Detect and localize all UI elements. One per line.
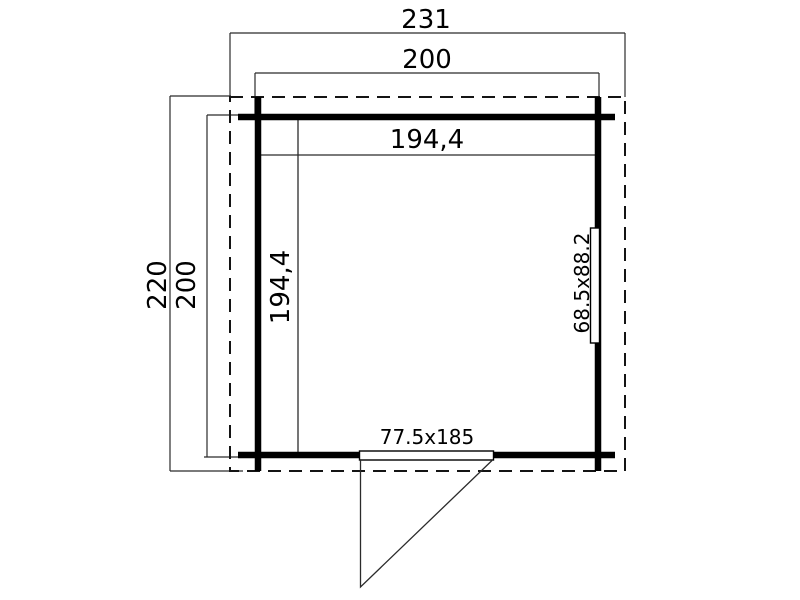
label-window-size: 68.5x88.2	[570, 233, 594, 334]
dimension-lines	[170, 33, 625, 471]
label-inner-depth: 194,4	[266, 250, 296, 324]
label-total-depth: 220	[143, 260, 173, 310]
label-wall-width: 200	[402, 45, 452, 75]
floorplan-drawing: 231 200 194,4 220 200 194,4 68.5x88.2 77…	[0, 0, 800, 600]
label-total-width: 231	[401, 5, 451, 35]
floorplan-canvas: 231 200 194,4 220 200 194,4 68.5x88.2 77…	[0, 0, 800, 600]
door-opening	[360, 451, 494, 460]
door-swing-line	[361, 460, 493, 587]
label-inner-width: 194,4	[390, 125, 464, 155]
interior-dim-lines	[258, 118, 597, 455]
label-wall-depth: 200	[172, 260, 202, 310]
label-door-size: 77.5x185	[380, 425, 475, 449]
